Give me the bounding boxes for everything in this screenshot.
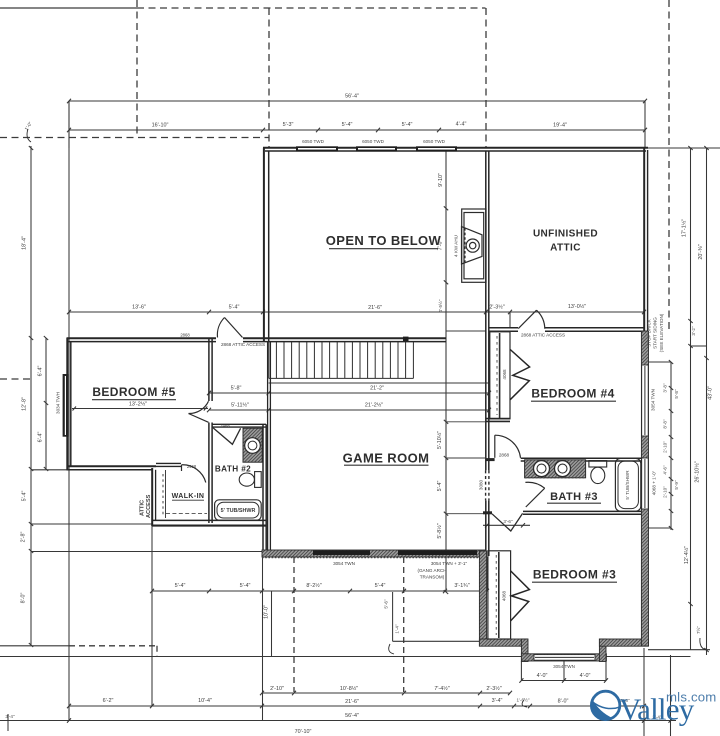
svg-text:16'-10": 16'-10" bbox=[152, 123, 169, 129]
svg-text:13'-6": 13'-6" bbox=[132, 305, 146, 311]
svg-text:STOP BRICK: STOP BRICK bbox=[647, 318, 652, 347]
svg-text:2'-3½": 2'-3½" bbox=[489, 304, 504, 311]
svg-text:5'-6": 5'-6" bbox=[384, 599, 389, 609]
svg-text:3'-4": 3'-4" bbox=[492, 698, 503, 704]
svg-text:3'-6": 3'-6" bbox=[503, 519, 513, 524]
svg-text:5'-3": 5'-3" bbox=[283, 122, 294, 128]
svg-text:BEDROOM #5: BEDROOM #5 bbox=[92, 385, 175, 399]
svg-text:OPEN TO BELOW: OPEN TO BELOW bbox=[326, 233, 442, 248]
svg-text:ATTIC: ATTIC bbox=[140, 500, 146, 516]
svg-text:5'-4": 5'-4" bbox=[175, 583, 186, 589]
svg-text:56'-4": 56'-4" bbox=[345, 713, 359, 719]
svg-text:5'-4": 5'-4" bbox=[375, 583, 386, 589]
svg-text:5' TUB/SHWR: 5' TUB/SHWR bbox=[221, 508, 256, 514]
svg-text:17'-1½": 17'-1½" bbox=[681, 219, 688, 237]
svg-text:2868: 2868 bbox=[180, 333, 190, 338]
svg-text:mls.com: mls.com bbox=[666, 690, 717, 705]
svg-text:ATTIC: ATTIC bbox=[550, 243, 581, 254]
svg-text:2868: 2868 bbox=[499, 453, 510, 458]
svg-text:4 KW AHU: 4 KW AHU bbox=[454, 235, 459, 257]
svg-text:TRANSOM): TRANSOM) bbox=[420, 575, 445, 580]
svg-text:5'-4": 5'-4" bbox=[402, 122, 413, 128]
svg-text:9'-10": 9'-10" bbox=[438, 173, 444, 187]
svg-text:56'-4": 56'-4" bbox=[345, 94, 359, 100]
svg-text:20'-⅜": 20'-⅜" bbox=[698, 244, 704, 259]
svg-text:5'-11½": 5'-11½" bbox=[231, 402, 249, 409]
svg-text:ACCESS: ACCESS bbox=[146, 494, 152, 518]
svg-text:13'-0½": 13'-0½" bbox=[568, 303, 586, 310]
svg-text:5'-8": 5'-8" bbox=[674, 389, 679, 399]
svg-text:GAME ROOM: GAME ROOM bbox=[343, 451, 430, 466]
svg-text:BATH #3: BATH #3 bbox=[550, 491, 598, 503]
svg-text:5'-8½": 5'-8½" bbox=[436, 523, 443, 538]
svg-text:6'-2": 6'-2" bbox=[103, 698, 114, 704]
svg-text:(SEE ELEVATION): (SEE ELEVATION) bbox=[659, 313, 664, 352]
svg-text:19'-4": 19'-4" bbox=[553, 123, 567, 129]
svg-text:(GANG ARCH: (GANG ARCH bbox=[417, 568, 446, 573]
svg-text:6050 TWD: 6050 TWD bbox=[302, 139, 325, 144]
svg-text:BEDROOM #4: BEDROOM #4 bbox=[531, 387, 614, 401]
svg-text:70'-10": 70'-10" bbox=[295, 729, 312, 735]
svg-text:4'-5½": 4'-5½" bbox=[437, 299, 443, 312]
svg-text:3054 TWN: 3054 TWN bbox=[553, 664, 575, 669]
svg-text:13'-2½": 13'-2½" bbox=[129, 401, 147, 408]
svg-text:5'-8": 5'-8" bbox=[231, 386, 242, 392]
svg-text:3054 TWN: 3054 TWN bbox=[333, 561, 355, 566]
svg-text:2'-10": 2'-10" bbox=[663, 486, 668, 498]
svg-text:10'-8½": 10'-8½" bbox=[340, 685, 358, 692]
svg-text:4'-6": 4'-6" bbox=[663, 465, 668, 475]
svg-text:8'-2½": 8'-2½" bbox=[306, 582, 321, 589]
svg-text:4'-4": 4'-4" bbox=[456, 122, 467, 128]
svg-text:43'-0": 43'-0" bbox=[708, 386, 714, 400]
svg-text:21'-6": 21'-6" bbox=[368, 305, 382, 311]
svg-text:4068 + 1'-0": 4068 + 1'-0" bbox=[652, 470, 657, 495]
svg-text:26'-10½": 26'-10½" bbox=[694, 461, 701, 482]
svg-text:12'-4½": 12'-4½" bbox=[683, 546, 690, 564]
svg-text:21'-2": 21'-2" bbox=[370, 386, 384, 392]
svg-text:BEDROOM #3: BEDROOM #3 bbox=[533, 568, 616, 582]
svg-text:5'-4": 5'-4" bbox=[22, 491, 28, 502]
svg-text:2868 ATTIC ACCESS: 2868 ATTIC ACCESS bbox=[221, 342, 265, 347]
svg-text:1'-4": 1'-4" bbox=[395, 624, 400, 634]
svg-text:2'-3½": 2'-3½" bbox=[486, 685, 501, 692]
svg-text:4068: 4068 bbox=[502, 590, 507, 601]
svg-text:10'-4": 10'-4" bbox=[198, 698, 212, 704]
svg-text:BATH #2: BATH #2 bbox=[215, 465, 251, 474]
svg-text:12'-8": 12'-8" bbox=[22, 397, 28, 411]
svg-text:5' TUB/SHWR: 5' TUB/SHWR bbox=[625, 470, 630, 500]
svg-text:2868 ATTIC ACCESS: 2868 ATTIC ACCESS bbox=[521, 333, 565, 338]
svg-text:2'-10": 2'-10" bbox=[270, 686, 284, 692]
svg-text:5'-4": 5'-4" bbox=[437, 481, 443, 492]
svg-text:6'-4": 6'-4" bbox=[38, 432, 44, 443]
svg-text:4'-0": 4'-0" bbox=[580, 673, 591, 679]
svg-text:WALK-IN: WALK-IN bbox=[172, 493, 205, 500]
svg-text:5'-4": 5'-4" bbox=[342, 122, 353, 128]
svg-text:7'-0": 7'-0" bbox=[438, 240, 444, 251]
svg-text:5'-4": 5'-4" bbox=[229, 305, 240, 311]
svg-text:4'-0": 4'-0" bbox=[537, 673, 548, 679]
svg-text:7'-4½": 7'-4½" bbox=[434, 685, 449, 692]
svg-text:21'-6": 21'-6" bbox=[345, 699, 359, 705]
svg-text:18'-4": 18'-4" bbox=[22, 236, 28, 250]
svg-text:START SIDING: START SIDING bbox=[653, 317, 658, 349]
svg-text:3'-1¾": 3'-1¾" bbox=[454, 583, 469, 589]
svg-text:3'-4": 3'-4" bbox=[5, 714, 15, 719]
svg-text:3'-8": 3'-8" bbox=[663, 383, 668, 393]
svg-text:2468: 2468 bbox=[220, 423, 230, 428]
svg-text:3034 TWH: 3034 TWH bbox=[56, 392, 61, 414]
svg-text:2468: 2468 bbox=[187, 464, 197, 469]
svg-text:3054 TWN + 3'-1": 3054 TWN + 3'-1" bbox=[431, 561, 468, 566]
svg-text:21'-2½": 21'-2½" bbox=[365, 402, 383, 409]
svg-text:3080: 3080 bbox=[479, 479, 484, 490]
svg-text:5'-10½": 5'-10½" bbox=[436, 431, 443, 449]
svg-text:3054 TWN: 3054 TWN bbox=[651, 389, 656, 411]
svg-text:1'-6½": 1'-6½" bbox=[517, 697, 530, 703]
svg-text:2'-8": 2'-8" bbox=[21, 532, 27, 543]
svg-text:6050 TWD: 6050 TWD bbox=[423, 139, 446, 144]
svg-text:UNFINISHED: UNFINISHED bbox=[533, 229, 598, 240]
svg-text:6050 TWD: 6050 TWD bbox=[362, 139, 385, 144]
svg-text:6'-4": 6'-4" bbox=[38, 366, 44, 377]
svg-text:5'-4": 5'-4" bbox=[240, 583, 251, 589]
svg-text:7½": 7½" bbox=[695, 626, 701, 634]
svg-text:10'-0": 10'-0" bbox=[264, 605, 270, 619]
svg-text:8'-8": 8'-8" bbox=[663, 419, 668, 429]
svg-text:5'-9": 5'-9" bbox=[674, 480, 679, 490]
svg-text:8'-0": 8'-0" bbox=[558, 699, 569, 705]
svg-text:1'-0": 1'-0" bbox=[24, 121, 34, 132]
svg-text:3'-2": 3'-2" bbox=[691, 326, 696, 336]
svg-text:2'-10": 2'-10" bbox=[663, 441, 668, 453]
svg-text:4068: 4068 bbox=[502, 369, 507, 380]
svg-text:8'-0": 8'-0" bbox=[21, 593, 27, 604]
